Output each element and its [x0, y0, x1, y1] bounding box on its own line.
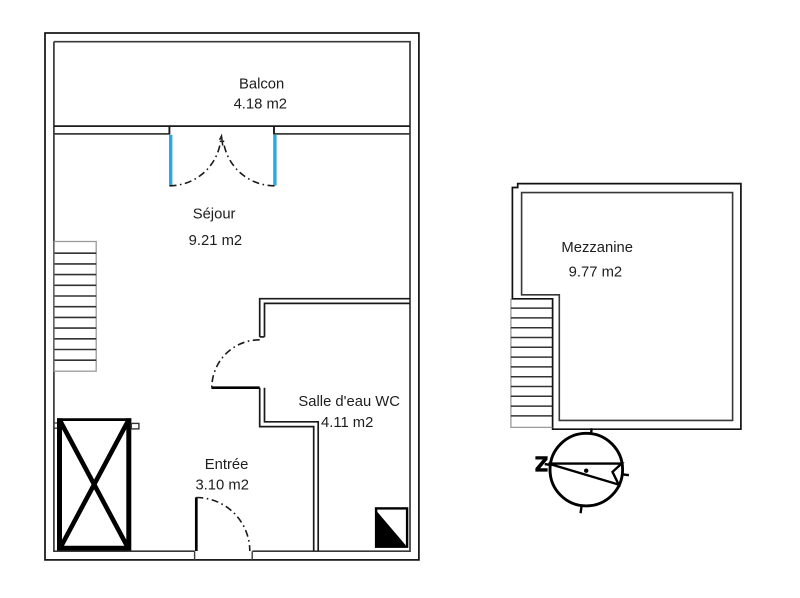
svg-text:Mezzanine: Mezzanine [561, 240, 633, 256]
svg-text:9.77 m2: 9.77 m2 [569, 264, 622, 280]
svg-text:Salle d'eau WC: Salle d'eau WC [298, 394, 400, 410]
svg-text:Séjour: Séjour [193, 207, 236, 223]
svg-text:3.10 m2: 3.10 m2 [195, 478, 248, 494]
svg-text:4.11 m2: 4.11 m2 [321, 415, 373, 431]
svg-text:Entrée: Entrée [205, 457, 249, 473]
svg-text:Balcon: Balcon [239, 76, 284, 92]
svg-text:9.21 m2: 9.21 m2 [189, 233, 242, 249]
svg-text:4.18 m2: 4.18 m2 [234, 97, 287, 113]
